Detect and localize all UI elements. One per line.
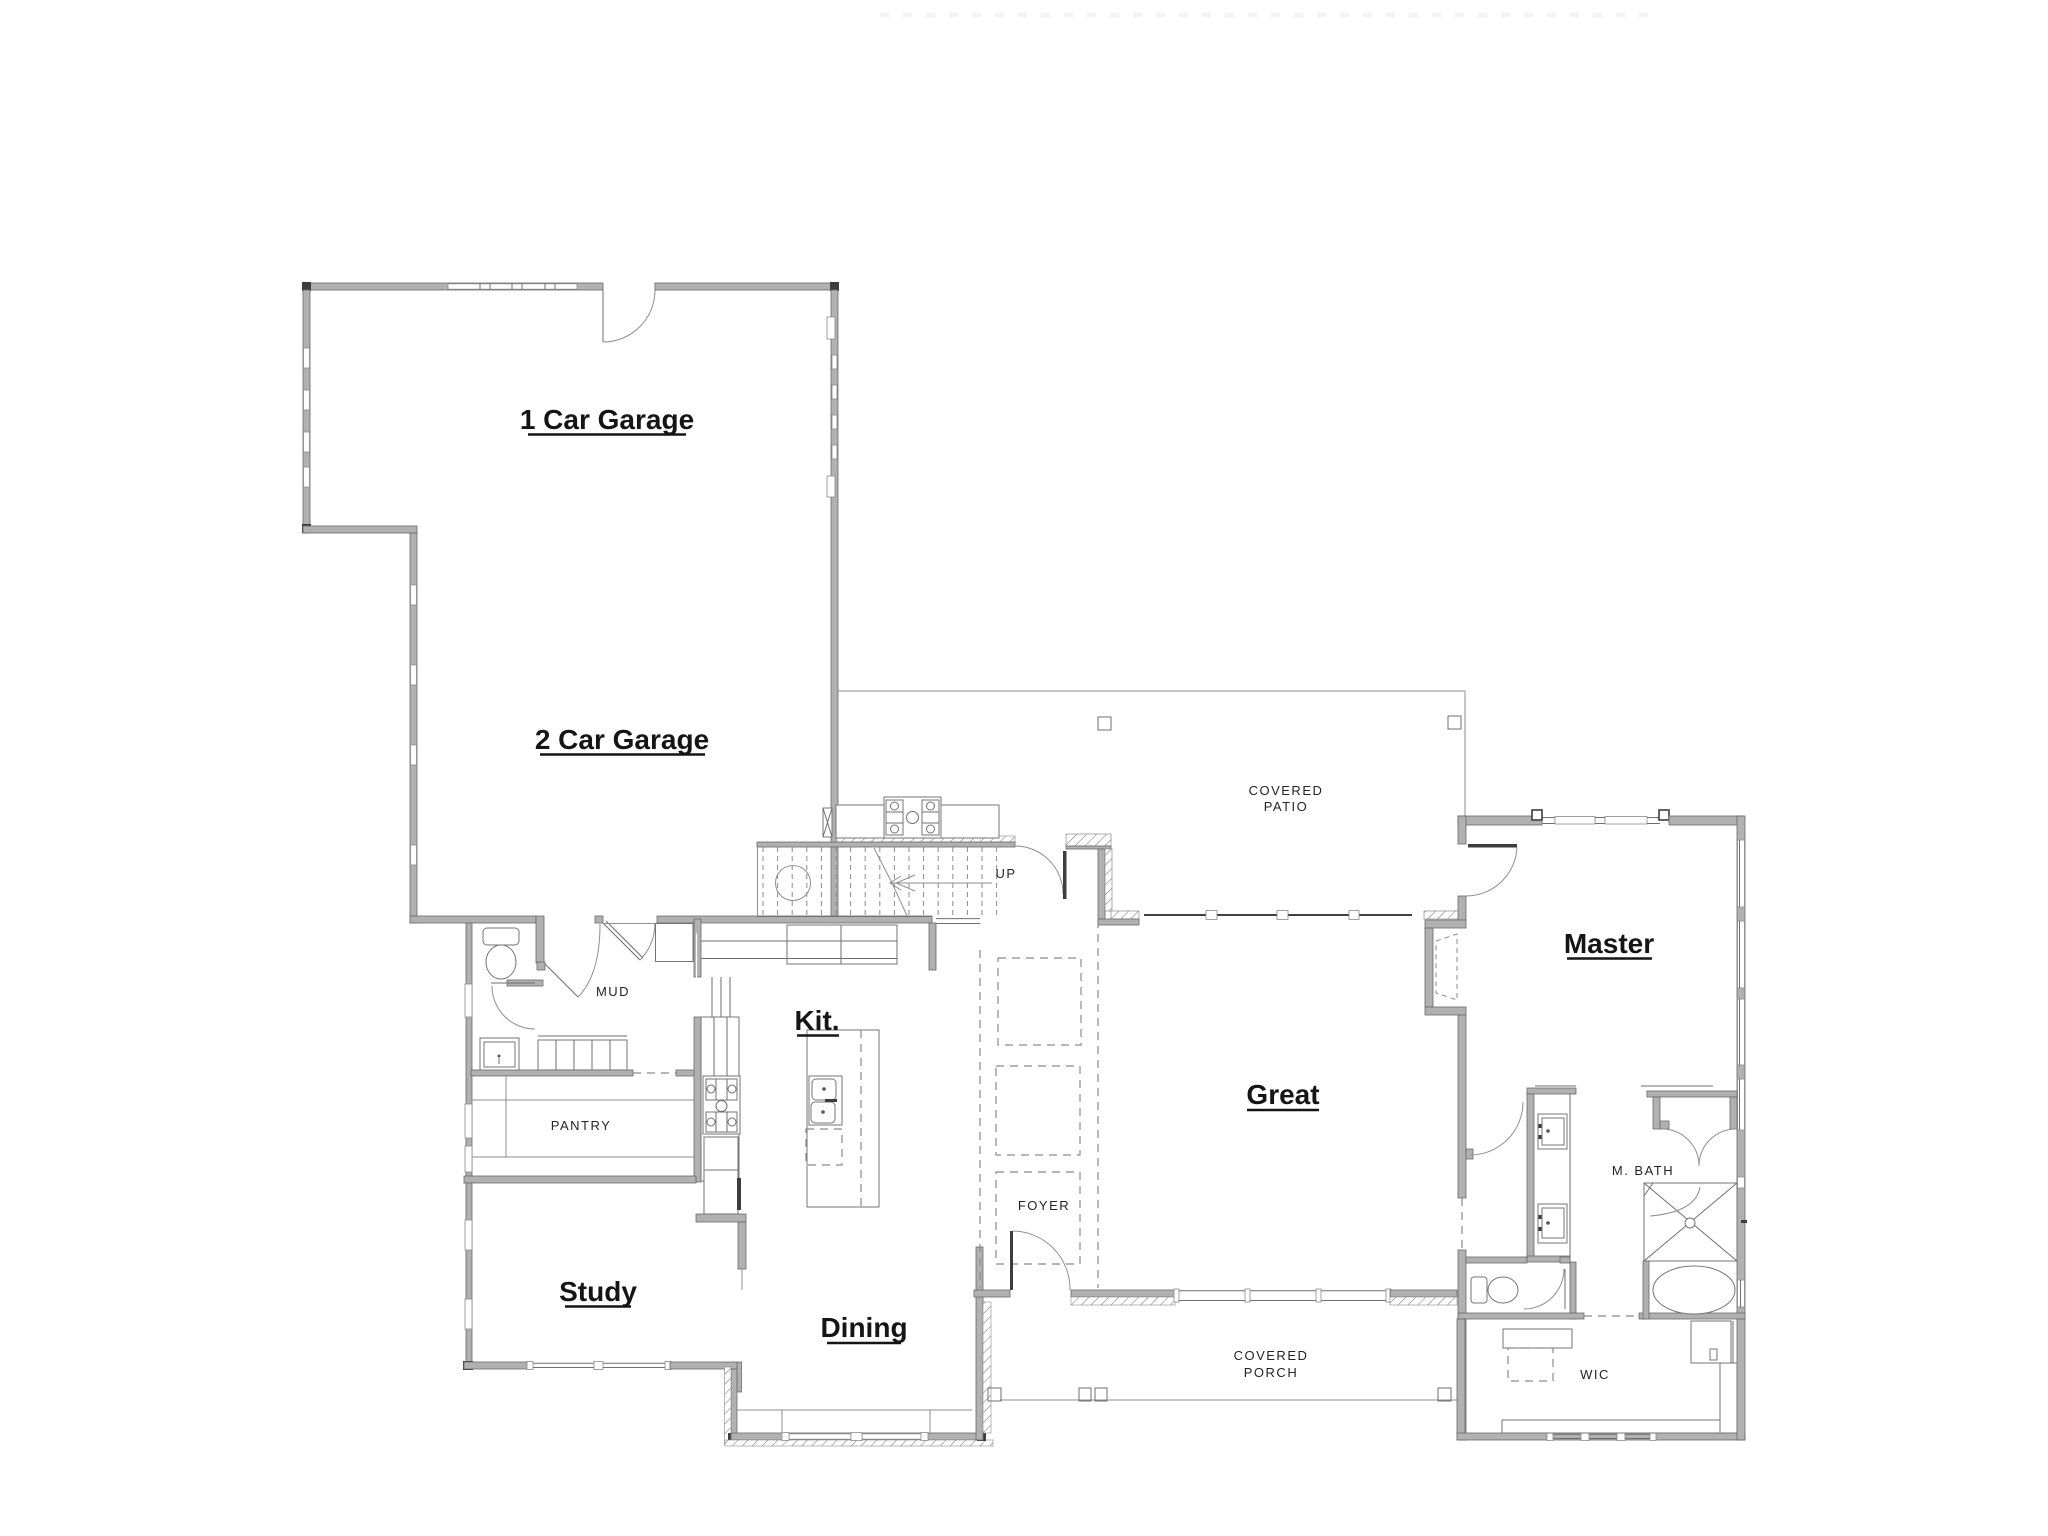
svg-text:Dining: Dining — [820, 1312, 907, 1343]
svg-text:Great: Great — [1246, 1079, 1319, 1110]
svg-text:1 Car Garage: 1 Car Garage — [520, 404, 694, 435]
svg-text:WIC: WIC — [1580, 1367, 1610, 1382]
svg-text:M. BATH: M. BATH — [1612, 1163, 1674, 1178]
svg-text:Kit.: Kit. — [794, 1005, 839, 1036]
svg-text:FOYER: FOYER — [1018, 1198, 1070, 1213]
svg-text:Master: Master — [1564, 928, 1654, 959]
svg-text:COVERED: COVERED — [1249, 783, 1324, 798]
svg-text:2 Car Garage: 2 Car Garage — [535, 724, 709, 755]
svg-text:PANTRY: PANTRY — [551, 1118, 612, 1133]
svg-text:Study: Study — [559, 1276, 637, 1307]
svg-text:PATIO: PATIO — [1264, 799, 1309, 814]
svg-text:MUD: MUD — [596, 984, 630, 999]
svg-text:UP: UP — [995, 866, 1016, 881]
svg-text:PORCH: PORCH — [1244, 1365, 1298, 1380]
svg-text:COVERED: COVERED — [1234, 1348, 1309, 1363]
